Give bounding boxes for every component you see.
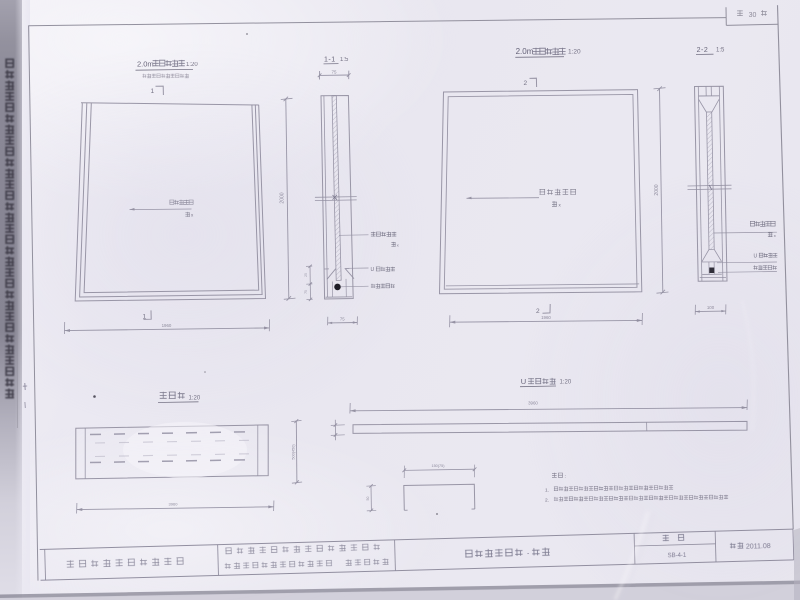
svg-text:3960: 3960 <box>528 400 538 405</box>
svg-text:75: 75 <box>304 290 308 294</box>
svg-text:x: x <box>774 233 776 238</box>
svg-text:1960: 1960 <box>541 315 551 320</box>
svg-text:2.0m: 2.0m <box>516 47 534 56</box>
svg-text:x: x <box>397 242 399 247</box>
svg-text:1:20: 1:20 <box>189 395 201 401</box>
svg-text:x: x <box>559 203 562 208</box>
svg-text:2000: 2000 <box>654 184 660 195</box>
svg-text:1960: 1960 <box>162 323 172 328</box>
svg-text:1-1: 1-1 <box>324 56 336 63</box>
svg-text:U: U <box>754 254 758 260</box>
svg-text:150(75): 150(75) <box>431 464 445 468</box>
svg-text:1:20: 1:20 <box>560 379 572 385</box>
svg-text:2000: 2000 <box>280 192 286 203</box>
svg-text:25: 25 <box>304 273 308 277</box>
svg-text:2011.08: 2011.08 <box>746 543 771 551</box>
svg-text:2: 2 <box>524 80 528 87</box>
svg-text:2.0m: 2.0m <box>137 60 154 69</box>
svg-text:50: 50 <box>366 497 370 501</box>
svg-text:1.: 1. <box>545 488 549 494</box>
svg-text::: : <box>565 474 566 480</box>
svg-text:2: 2 <box>536 308 540 315</box>
svg-text:U: U <box>371 267 375 273</box>
svg-text:U: U <box>521 377 526 386</box>
svg-text:30: 30 <box>749 12 757 19</box>
svg-text:1:20: 1:20 <box>568 49 581 56</box>
svg-text:1: 1 <box>151 88 155 95</box>
svg-text:75: 75 <box>331 69 337 74</box>
svg-text:SB-4-1: SB-4-1 <box>667 553 686 560</box>
svg-text:1:5: 1:5 <box>340 57 349 63</box>
svg-text:-: - <box>527 551 530 558</box>
svg-text:3960: 3960 <box>169 501 179 506</box>
svg-text:75: 75 <box>340 316 345 321</box>
svg-text:2-2: 2-2 <box>697 47 709 54</box>
svg-text:1:5: 1:5 <box>716 48 725 54</box>
svg-text:2.: 2. <box>545 498 549 504</box>
svg-text:1:20: 1:20 <box>186 62 198 68</box>
svg-text:500(450): 500(450) <box>292 444 296 460</box>
svg-text:100: 100 <box>707 305 715 310</box>
